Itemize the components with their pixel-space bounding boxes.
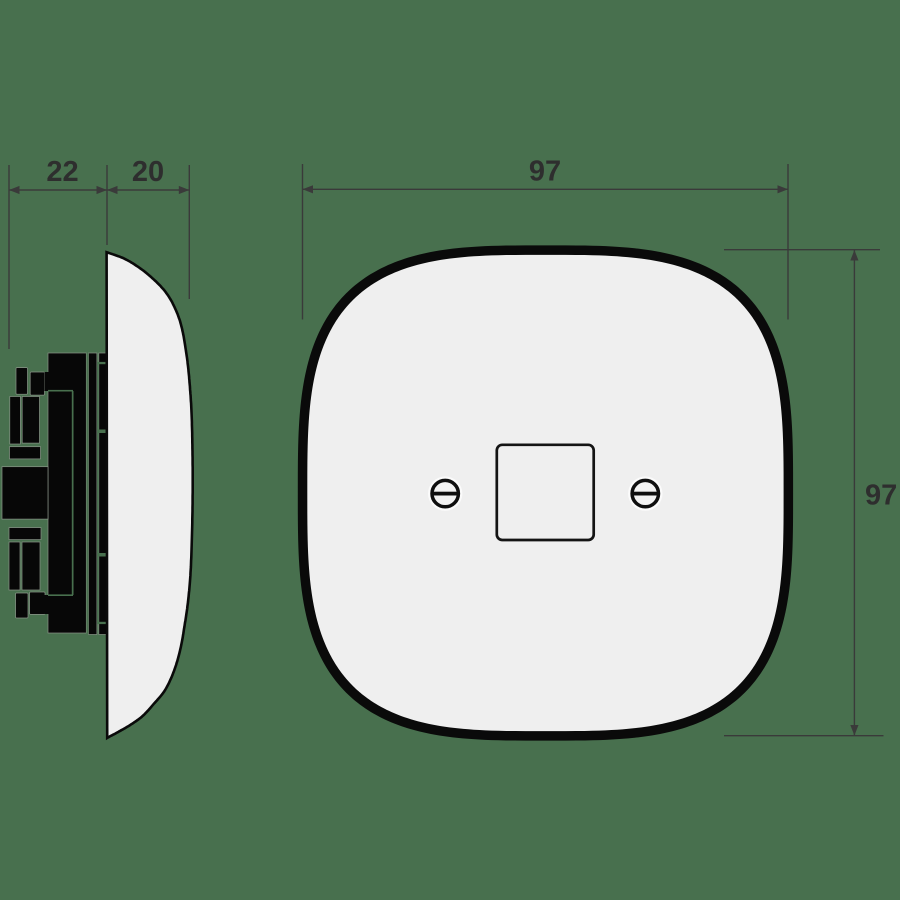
svg-text:97: 97 [865,480,897,512]
svg-text:22: 22 [46,156,78,188]
svg-text:20: 20 [132,156,164,188]
svg-text:97: 97 [529,156,561,188]
